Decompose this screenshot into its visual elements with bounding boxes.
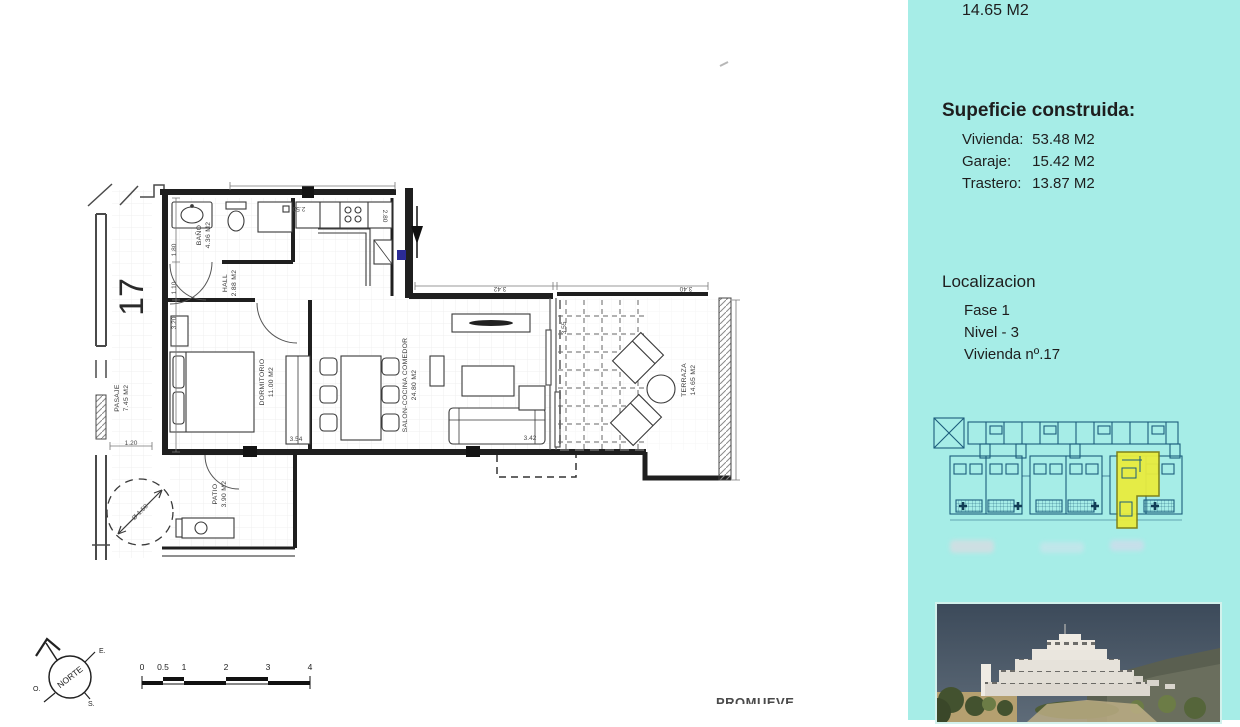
superficie-value: 13.87 M2 — [1032, 175, 1095, 192]
superficie-title: Supeficie construida: — [942, 100, 1135, 122]
scale-tick: 4 — [308, 662, 313, 672]
dim-label: 3.42 — [493, 285, 506, 292]
dim-label: 3.42 — [524, 435, 537, 442]
chair — [320, 414, 337, 431]
room-label-terraza: TERRAZA — [681, 363, 688, 397]
room-area-terraza: 14.65 M2 — [690, 365, 697, 396]
superficie-row: Vivienda: 53.48 M2 — [962, 129, 1095, 151]
superficie-label: Trastero: — [962, 173, 1028, 195]
room-label-salon: SALON-COCINA COMEDOR — [402, 338, 409, 433]
unit-number: 17 — [113, 278, 151, 316]
dim-label: 2.80 — [381, 210, 388, 223]
dim-label: 3.20 — [171, 316, 178, 329]
chair — [320, 386, 337, 403]
compass-norte: NORTE — [55, 664, 85, 690]
dim-label: 1.20 — [125, 440, 138, 447]
kitchen-counter — [296, 202, 392, 228]
patio-fixtures — [176, 518, 234, 538]
sofa-chaise — [519, 386, 545, 410]
superficie-value: 53.48 M2 — [1032, 131, 1095, 148]
compass-south: S. — [88, 701, 95, 708]
dim-label: 3.40 — [679, 285, 692, 292]
tv — [469, 320, 513, 326]
dashed-projection — [497, 455, 576, 477]
info-panel: 14.65 M2 Supeficie construida: Vivienda:… — [908, 0, 1240, 720]
dim-label: 2.50 — [292, 205, 305, 212]
localizacion-title: Localizacion — [942, 272, 1036, 292]
superficie-list: Vivienda: 53.48 M2 Garaje: 15.42 M2 Tras… — [962, 129, 1095, 195]
smudge — [1110, 540, 1144, 551]
bathroom-fixtures — [172, 202, 292, 232]
promueve-caption: PROMUEVE — [716, 695, 794, 704]
dining-set — [320, 356, 399, 440]
compass-west: O. — [33, 686, 40, 693]
terraza-area-value: 14.65 M2 — [962, 2, 1029, 20]
stray-mark — [720, 62, 728, 66]
toilet-tank — [226, 202, 246, 209]
dim-label: 3.55 — [561, 321, 568, 334]
superficie-label: Vivienda: — [962, 129, 1028, 151]
terrace-party-wall — [719, 298, 731, 480]
chair — [382, 414, 399, 431]
coffee-table — [462, 366, 514, 396]
compass-rose: NORTE E. O. S. — [33, 639, 106, 708]
bath-sink — [181, 207, 203, 223]
room-label-bano: BAÑO — [194, 225, 203, 245]
room-area-pasaje: 7.45 M2 — [123, 385, 130, 412]
dim-label: 1.10 — [171, 281, 178, 294]
scale-tick: 2 — [224, 662, 229, 672]
side-cabinet — [430, 356, 444, 386]
scale-tick: 3 — [266, 662, 271, 672]
scale-bar: 0 0.5 1 2 3 4 — [140, 662, 313, 689]
building-photo — [935, 602, 1222, 724]
room-label-patio: PATIO — [212, 484, 219, 505]
superficie-label: Garaje: — [962, 151, 1028, 173]
dining-table — [341, 356, 381, 440]
smudge — [1040, 542, 1084, 553]
room-label-hall: HALL — [222, 274, 229, 292]
scale-tick: 0.5 — [157, 662, 169, 672]
highlighted-unit — [1117, 452, 1159, 528]
chair — [382, 386, 399, 403]
pillow — [173, 392, 184, 424]
siteplan-thumbnail — [920, 416, 1196, 538]
chair — [320, 358, 337, 375]
superficie-value: 15.42 M2 — [1032, 153, 1095, 170]
scale-tick: 1 — [182, 662, 187, 672]
blue-wall-marker — [397, 250, 406, 260]
room-label-pasaje: PASAJE — [114, 384, 121, 412]
toilet-bowl — [228, 211, 244, 231]
superficie-row: Garaje: 15.42 M2 — [962, 151, 1095, 173]
dim-label: 1.80 — [171, 243, 178, 256]
superficie-row: Trastero: 13.87 M2 — [962, 173, 1095, 195]
pillow — [173, 356, 184, 388]
room-area-patio: 3.90 M2 — [221, 481, 228, 508]
washer — [182, 518, 234, 538]
room-area-bano: 4.36 M2 — [205, 222, 212, 249]
brochure-page: 1.80 1.10 3.20 2.50 2.80 3.42 3.40 3.55 … — [0, 0, 1240, 720]
localizacion-row: Fase 1 — [964, 300, 1060, 322]
room-label-dormitorio: DORMITORIO — [259, 358, 266, 405]
scale-tick: 0 — [140, 662, 145, 672]
localizacion-list: Fase 1 Nivel - 3 Vivienda nº.17 — [964, 300, 1060, 366]
room-area-hall: 2.88 M2 — [231, 270, 238, 297]
localizacion-row: Vivienda nº.17 — [964, 344, 1060, 366]
room-area-salon: 24.80 M2 — [411, 370, 418, 401]
dim-label: 3.54 — [290, 436, 303, 443]
localizacion-row: Nivel - 3 — [964, 322, 1060, 344]
floorplan-drawing: 1.80 1.10 3.20 2.50 2.80 3.42 3.40 3.55 … — [0, 0, 905, 720]
smudge — [950, 540, 994, 553]
compass-east: E. — [99, 648, 106, 655]
terrace-table — [647, 375, 675, 403]
room-area-dormitorio: 11.00 M2 — [268, 367, 275, 397]
chair — [382, 358, 399, 375]
